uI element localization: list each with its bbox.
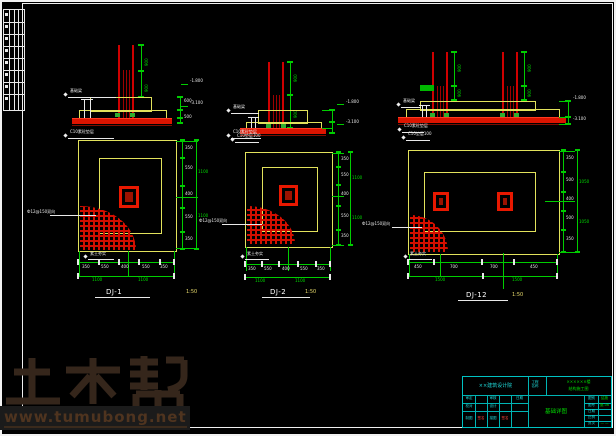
dim-label: 450 (530, 265, 538, 269)
tick-text (5, 25, 8, 28)
scale-label: 1:50 (512, 293, 523, 298)
dim-label: 350 (317, 267, 325, 271)
detail-title: DJ-2 (270, 289, 286, 296)
dim-label: 500 (566, 216, 574, 220)
column-section (119, 186, 139, 208)
dim-total: 1100 (198, 170, 208, 174)
dim-label: 350 (341, 157, 349, 161)
scale-label: 1:50 (186, 290, 197, 295)
callout-label: 基础梁 (70, 89, 82, 93)
revision-strip (3, 9, 25, 111)
leader-line (68, 97, 116, 98)
dim-label: 350 (566, 156, 574, 160)
tb-mini-label: 页次 (585, 422, 598, 426)
dim-label: 350 (82, 265, 90, 269)
title-underline (458, 300, 508, 301)
dim-label: 700 (490, 265, 498, 269)
dim-label: 700 (450, 265, 458, 269)
dim-label: 900 (145, 58, 149, 66)
watermark: 土木帮 www.tumubong.net (0, 350, 200, 436)
wall-line (84, 99, 85, 118)
dim-total: 1050 (579, 180, 589, 184)
elevation-label: -3.100 (346, 120, 359, 124)
tick-text (5, 61, 8, 64)
dim-label: 350 (160, 265, 168, 269)
line (4, 34, 24, 35)
wall-line (81, 99, 93, 100)
callout-label: 素土夯实 (247, 252, 263, 256)
dim-label: 900 (458, 64, 462, 72)
title-underline (262, 297, 310, 298)
line (4, 70, 24, 71)
dim-label: 400 (566, 197, 574, 201)
callout-label: 基础梁 (403, 99, 415, 103)
tb-cell: 设计 (487, 405, 499, 409)
rebar-callout: Ф12@150双向 (199, 219, 227, 223)
tb-cell: 校对 (463, 405, 475, 409)
rebar-callout: Ф12@150双向 (27, 210, 55, 214)
dim-line (568, 101, 569, 125)
design-firm: ××建筑设计院 (463, 384, 528, 389)
callout-label: 基础梁 (233, 105, 245, 109)
tb-mini-label: 图号 (585, 404, 598, 408)
watermark-url-bar: www.tumubong.net (0, 406, 190, 430)
dim-line (454, 52, 455, 101)
line (9, 10, 10, 110)
dim-total: 1500 (435, 278, 445, 282)
dim-label: 400 (282, 267, 290, 271)
callout-label: C10垫层100 (408, 132, 432, 136)
callout-label: C10素砼垫层 (70, 130, 94, 134)
leader-line (68, 138, 114, 139)
elevation-label: -3.100 (190, 101, 203, 105)
line (14, 10, 15, 110)
tb-mini-value: 施-06 (599, 404, 610, 408)
tb-mini-value: 结施 (599, 397, 610, 401)
dim-total: 1100 (138, 278, 148, 282)
dim-label: 350 (248, 267, 256, 271)
detail-title: DJ-1 (106, 289, 122, 296)
callout-label: C10垫层100 (237, 134, 261, 138)
tb-cell: 描图 (487, 417, 499, 421)
anchor (115, 113, 120, 117)
tb-mini-label: 日期 (585, 410, 598, 414)
dim-label: 500 (184, 115, 192, 119)
line (4, 58, 24, 59)
dim-label: 550 (142, 265, 150, 269)
dim-label: 900 (294, 74, 298, 82)
tb-signature: 签名 (499, 417, 511, 421)
tb-mini-value: — — (599, 422, 610, 426)
line (4, 82, 24, 83)
callout-label: 素土夯实 (410, 252, 426, 256)
tb-signature: 签名 (475, 417, 487, 421)
anchor (130, 113, 135, 117)
rebar-callout: Ф12@150双向 (362, 222, 390, 226)
elevation-label: -1.800 (190, 79, 203, 83)
tick-text (5, 49, 8, 52)
dim-label: 350 (341, 234, 349, 238)
project-name-line2: 结构施工图 (547, 387, 610, 391)
dim-label: 900 (458, 89, 462, 97)
tb-mini-label: 比例 (585, 416, 598, 420)
dim-label: 550 (300, 267, 308, 271)
tick-text (5, 85, 8, 88)
leader-line (50, 215, 96, 216)
dim-label: 400 (121, 265, 129, 269)
dim-chain (408, 262, 558, 263)
dim-label: 900 (528, 64, 532, 72)
tb-cell: 日期 (511, 397, 528, 401)
tick-text (5, 37, 8, 40)
title-block: ××建筑设计院 工程名称 ××××××楼 结构施工图 审定 审核 日期 校对 设… (462, 376, 612, 428)
dim-total: 1100 (295, 279, 305, 283)
cad-drawing-canvas: 900 900 600 500 -1.800 -3.100 基础梁 C10素砼垫… (0, 0, 616, 436)
dim-label: 550 (185, 215, 193, 219)
dim-chain (563, 150, 564, 253)
footing-base (72, 118, 172, 124)
elevation-label: -1.800 (573, 96, 586, 100)
column-section (279, 185, 298, 206)
dim-total: 1050 (579, 220, 589, 224)
dim-label: 500 (566, 178, 574, 182)
callout-label: 素土夯实 (90, 252, 106, 256)
level-tag (420, 85, 434, 91)
title-underline (95, 297, 150, 298)
scale-label: 1:50 (305, 290, 316, 295)
dim-label: 400 (185, 192, 193, 196)
dim-chain (245, 264, 331, 265)
project-name-label: 工程名称 (530, 381, 540, 389)
dim-chain (196, 140, 197, 250)
dim-label: 900 (145, 84, 149, 92)
dim-label: 350 (185, 146, 193, 150)
line (4, 46, 24, 47)
line (4, 22, 24, 23)
tick-text (5, 13, 8, 16)
elevation-label: -3.100 (573, 117, 586, 121)
dim-label: 350 (185, 237, 193, 241)
tick-text (5, 73, 8, 76)
dim-total: 1100 (255, 279, 265, 283)
column-section (433, 192, 449, 211)
dim-line (524, 52, 525, 101)
dim-total: 1100 (352, 176, 362, 180)
blinding-line (72, 125, 172, 126)
tb-cell: 审定 (463, 397, 475, 401)
callout-label: C10素砼垫层 (404, 124, 428, 128)
dim-label: 350 (566, 237, 574, 241)
dim-label: 550 (101, 265, 109, 269)
dim-total: 1100 (352, 216, 362, 220)
line (18, 10, 19, 110)
dim-label: 550 (185, 166, 193, 170)
dim-label: 400 (341, 192, 349, 196)
tb-cell: 制图 (463, 417, 475, 421)
dim-label: 550 (264, 267, 272, 271)
dim-total: 1100 (92, 278, 102, 282)
dim-chain (350, 152, 351, 246)
tick-text (5, 97, 8, 100)
column-section (497, 192, 513, 211)
detail-title: DJ-12 (466, 292, 487, 299)
dim-total: 1500 (512, 278, 522, 282)
dim-chain (577, 150, 578, 253)
wall-line (90, 99, 91, 118)
elevation-label: -1.800 (346, 100, 359, 104)
watermark-brand-icon (2, 352, 194, 408)
drawing-title: 基础详图 (529, 409, 583, 415)
line (4, 94, 24, 95)
dim-label: 450 (414, 265, 422, 269)
project-name: ××××××楼 (547, 380, 610, 384)
dim-label: 550 (341, 173, 349, 177)
tb-mini-label: 图别 (585, 397, 598, 401)
tb-cell: 审核 (487, 397, 499, 401)
dim-label: 550 (341, 214, 349, 218)
dim-label: 900 (528, 89, 532, 97)
watermark-url: www.tumubong.net (4, 408, 187, 428)
